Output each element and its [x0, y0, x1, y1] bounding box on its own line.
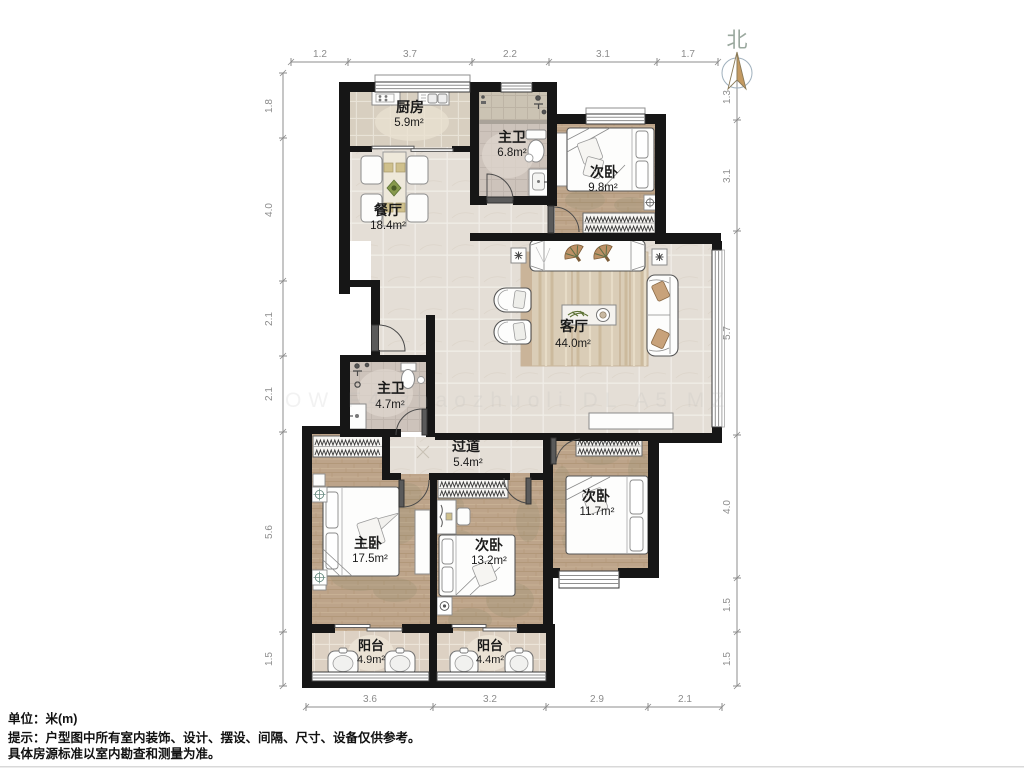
svg-text:1.5: 1.5 [722, 652, 733, 666]
svg-text:北: 北 [727, 29, 748, 52]
svg-text:44.0m²: 44.0m² [555, 338, 591, 350]
svg-text:3.6: 3.6 [363, 694, 377, 705]
svg-text:3.1: 3.1 [596, 49, 610, 60]
svg-text:1.5: 1.5 [264, 652, 275, 666]
svg-text:2.2: 2.2 [503, 49, 517, 60]
svg-text:17.5m²: 17.5m² [352, 553, 388, 565]
svg-text:4.0: 4.0 [264, 203, 275, 217]
svg-text:主卫: 主卫 [498, 129, 526, 145]
svg-text:1.2: 1.2 [313, 49, 327, 60]
svg-text:1.3: 1.3 [722, 90, 733, 104]
svg-text:OW F4 zhaozhuoli DL A5 MZ: OW F4 zhaozhuoli DL A5 MZ [285, 389, 731, 412]
svg-text:1.5: 1.5 [722, 598, 733, 612]
svg-text:餐厅: 餐厅 [373, 202, 402, 218]
svg-text:客厅: 客厅 [559, 318, 588, 334]
svg-text:1.8: 1.8 [264, 99, 275, 113]
svg-text:4.0: 4.0 [722, 500, 733, 514]
svg-text:2.9: 2.9 [590, 694, 604, 705]
svg-text:2.1: 2.1 [264, 387, 275, 401]
svg-text:4.4m²: 4.4m² [476, 654, 504, 666]
svg-text:主卧: 主卧 [354, 535, 382, 551]
svg-text:过道: 过道 [452, 438, 480, 454]
svg-text:5.6: 5.6 [264, 525, 275, 539]
svg-text:5.4m²: 5.4m² [453, 457, 483, 469]
svg-text:阳台: 阳台 [358, 638, 384, 653]
svg-text:提示：户型图中所有室内装饰、设计、摆设、间隔、尺寸、设备仅供: 提示：户型图中所有室内装饰、设计、摆设、间隔、尺寸、设备仅供参考。 [8, 730, 421, 745]
svg-text:5.9m²: 5.9m² [394, 117, 424, 129]
svg-text:6.8m²: 6.8m² [497, 147, 527, 159]
svg-text:4.9m²: 4.9m² [357, 654, 385, 666]
svg-text:阳台: 阳台 [477, 638, 503, 653]
svg-text:3.2: 3.2 [483, 694, 497, 705]
svg-text:3.1: 3.1 [722, 169, 733, 183]
svg-text:13.2m²: 13.2m² [471, 555, 507, 567]
svg-text:18.4m²: 18.4m² [370, 220, 406, 232]
svg-text:2.1: 2.1 [678, 694, 692, 705]
svg-text:次卧: 次卧 [475, 537, 503, 553]
svg-text:次卧: 次卧 [590, 164, 618, 180]
svg-text:具体房源标准以室内勘查和测量为准。: 具体房源标准以室内勘查和测量为准。 [7, 746, 221, 761]
svg-text:单位：米(m): 单位：米(m) [8, 711, 77, 726]
svg-text:9.8m²: 9.8m² [588, 182, 618, 194]
svg-text:厨房: 厨房 [396, 99, 424, 115]
svg-text:11.7m²: 11.7m² [580, 506, 615, 518]
svg-text:2.1: 2.1 [264, 312, 275, 326]
svg-text:5.7: 5.7 [722, 326, 733, 340]
svg-text:次卧: 次卧 [582, 488, 610, 504]
svg-text:1.7: 1.7 [681, 49, 695, 60]
svg-text:3.7: 3.7 [403, 49, 417, 60]
